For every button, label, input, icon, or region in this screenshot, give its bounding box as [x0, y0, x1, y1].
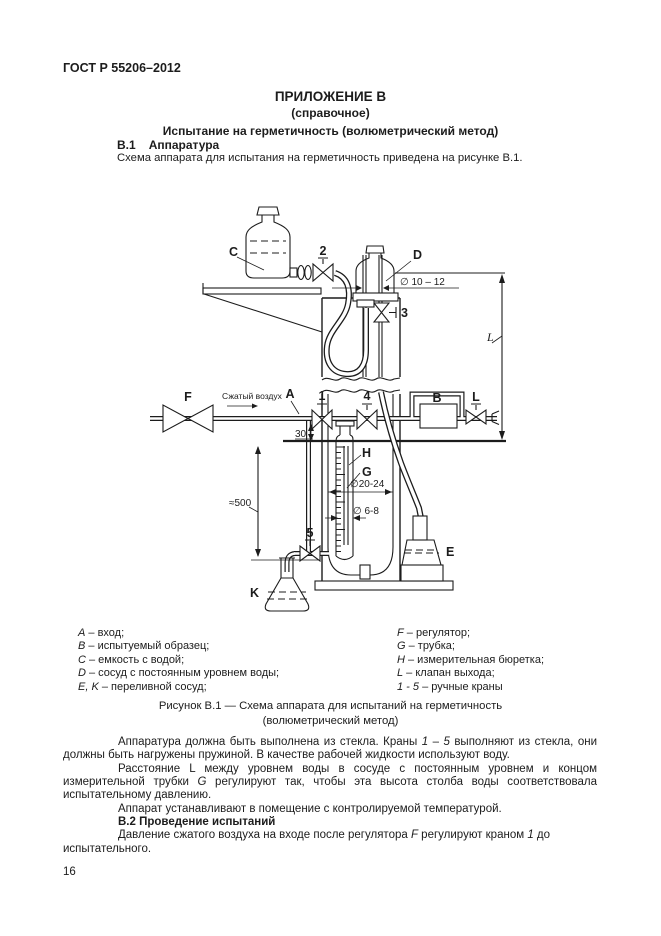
valve-3: [374, 303, 396, 322]
hose-flange: [357, 300, 374, 307]
clause-b1-name: Аппаратура: [149, 138, 220, 152]
leader-a: [291, 401, 299, 414]
legend-item: C – емкость с водой;: [78, 654, 279, 667]
label-a: A: [285, 387, 294, 401]
base-plate: [315, 581, 453, 590]
label-g: G: [362, 465, 372, 479]
figure-legend-right: F – регулятор; G – трубка; H – измерител…: [397, 627, 544, 694]
inlet-sleeve: [413, 516, 427, 540]
constant-level-vessel-d: [353, 246, 398, 377]
overflow-hose: [381, 392, 421, 518]
appendix-section-title: Испытание на герметичность (волюметричес…: [0, 124, 661, 138]
legend-item: G – трубка;: [397, 640, 544, 653]
appendix-title: ПРИЛОЖЕНИЕ В: [0, 89, 661, 104]
label-exit-valve-l: L: [472, 390, 480, 404]
figure-caption-line1: Рисунок В.1 — Схема аппарата для испытан…: [0, 699, 661, 714]
label-valve-3: 3: [401, 306, 408, 320]
label-b: B: [432, 391, 441, 405]
clause-b1-intro: Схема аппарата для испытания на герметич…: [117, 152, 523, 164]
appendix-note: (справочное): [0, 106, 661, 120]
figure-b1-diagram: C 2 D ∅ 10 – 12 3 L F Сжатый воздух A 1 …: [146, 198, 512, 622]
label-e: E: [446, 545, 454, 559]
inner-tube-g: [344, 446, 348, 545]
paragraph-room-temperature: Аппарат устанавливают в помещение с конт…: [63, 803, 597, 816]
label-distance-l: L: [486, 330, 494, 344]
label-c: C: [229, 245, 238, 259]
legend-item: 1 - 5 – ручные краны: [397, 681, 544, 694]
paragraph-distance-l: Расстояние L между уровнем воды в сосуде…: [63, 763, 597, 803]
legend-item: L – клапан выхода;: [397, 667, 544, 680]
bottom-plug: [360, 565, 370, 579]
figure-caption: Рисунок В.1 — Схема аппарата для испытан…: [0, 699, 661, 728]
document-page: ГОСТ Р 55206–2012 ПРИЛОЖЕНИЕ В (справочн…: [0, 0, 661, 936]
label-valve-4: 4: [364, 389, 371, 403]
dim-text-20-24: ∅20-24: [350, 479, 385, 490]
leader-h: [349, 455, 361, 465]
dim-text-500: ≈500: [229, 498, 252, 509]
clause-b2-heading: В.2 Проведение испытаний: [63, 816, 597, 829]
legend-item: H – измерительная бюретка;: [397, 654, 544, 667]
legend-item: D – сосуд с постоянным уровнем воды;: [78, 667, 279, 680]
label-f: F: [184, 390, 192, 404]
label-valve-1: 1: [319, 389, 326, 403]
label-valve-5: 5: [307, 526, 314, 540]
figure-caption-line2: (волюметрический метод): [0, 714, 661, 729]
label-h: H: [362, 446, 371, 460]
dim-text-6-8: ∅ 6-8: [353, 506, 379, 517]
overflow-vessel-e: [401, 516, 443, 581]
page-number: 16: [63, 866, 76, 878]
label-compressed-air: Сжатый воздух: [222, 391, 283, 401]
clause-body-text: Аппаратура должна быть выполнена из стек…: [63, 736, 597, 856]
exit-valve-l: [466, 404, 499, 425]
paragraph-air-pressure: Давление сжатого воздуха на входе после …: [63, 829, 597, 856]
bellows-coupling: [298, 266, 304, 280]
shelf-bracket: [203, 283, 322, 332]
test-specimen-b: [420, 404, 457, 428]
label-k: K: [250, 586, 259, 600]
legend-item: E, K – переливной сосуд;: [78, 681, 279, 694]
paragraph-apparatus-material: Аппаратура должна быть выполнена из стек…: [63, 736, 597, 763]
water-bottle-c: [246, 207, 290, 278]
legend-item: B – испытуемый образец;: [78, 640, 279, 653]
clause-b1-heading: В.1Аппаратура: [117, 138, 219, 152]
dimension-distance-l: [492, 274, 505, 440]
valve-f: [163, 405, 213, 432]
dim-text-30: 30: [295, 429, 307, 440]
legend-item: F – регулятор;: [397, 627, 544, 640]
dim-text-10-12: ∅ 10 – 12: [400, 277, 445, 288]
valve-2: [290, 258, 333, 281]
clause-b1-number: В.1: [117, 138, 136, 152]
label-valve-2: 2: [320, 244, 327, 258]
flow-arrow: [227, 404, 258, 409]
standard-reference: ГОСТ Р 55206–2012: [63, 61, 181, 75]
figure-legend-left: A – вход; B – испытуемый образец; C – ем…: [78, 627, 279, 694]
label-d: D: [413, 248, 422, 262]
legend-item: A – вход;: [78, 627, 279, 640]
